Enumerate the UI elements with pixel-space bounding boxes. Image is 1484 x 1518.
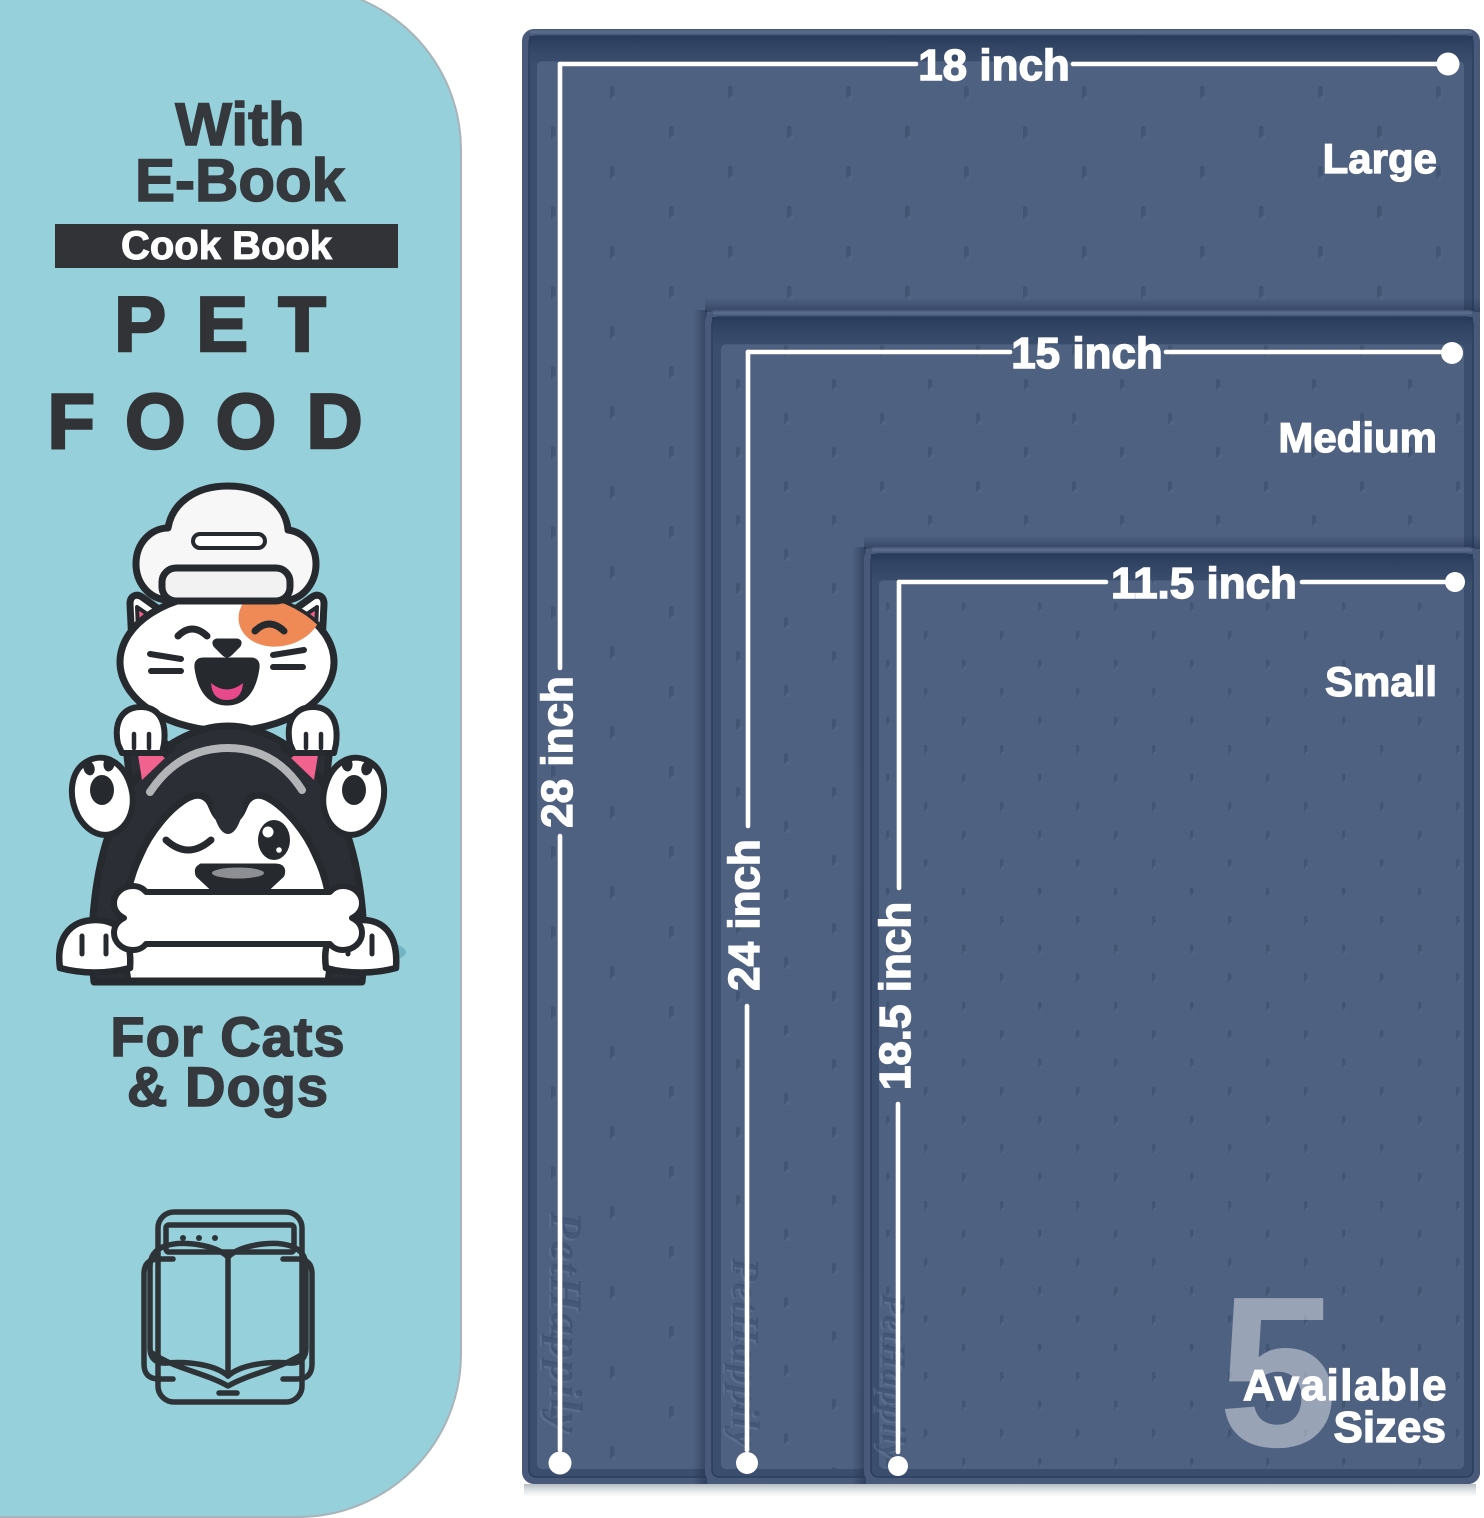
svg-text:Sizes: Sizes (1333, 1403, 1446, 1452)
svg-text:11.5 inch: 11.5 inch (1111, 559, 1297, 608)
svg-text:PetHappily: PetHappily (542, 1211, 591, 1435)
svg-text:18 inch: 18 inch (918, 41, 1070, 90)
svg-text:15 inch: 15 inch (1011, 329, 1163, 378)
svg-text:Medium: Medium (1278, 414, 1437, 461)
svg-text:18.5 inch: 18.5 inch (871, 902, 920, 1090)
svg-text:Small: Small (1325, 658, 1437, 705)
svg-text:24 inch: 24 inch (720, 839, 769, 991)
svg-text:28 inch: 28 inch (533, 676, 582, 828)
svg-text:Large: Large (1323, 135, 1437, 182)
svg-text:PetHappily: PetHappily (875, 1293, 912, 1461)
